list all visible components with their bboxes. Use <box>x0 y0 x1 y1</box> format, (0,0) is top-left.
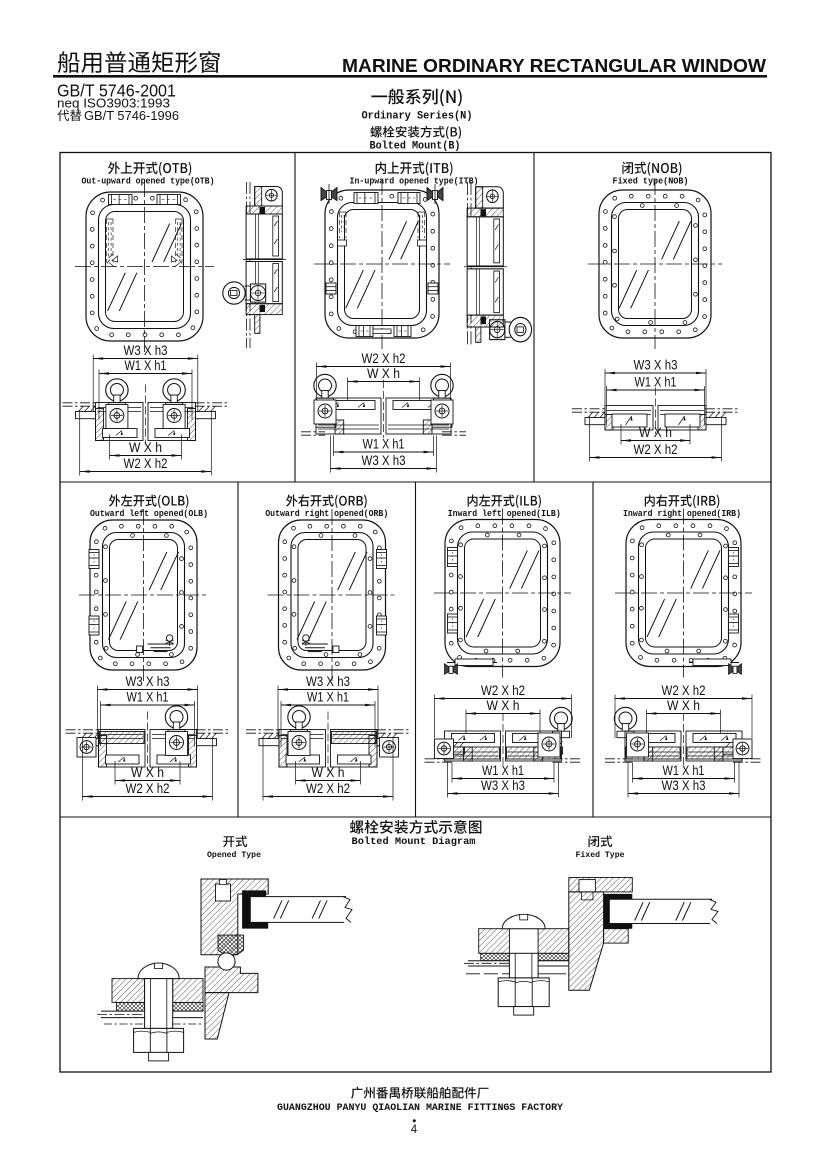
svg-text:W1 X h1: W1 X h1 <box>307 690 349 705</box>
svg-text:W X h: W X h <box>131 765 164 780</box>
svg-text:W3 X h3: W3 X h3 <box>634 358 678 373</box>
svg-text:W X h: W X h <box>312 765 345 780</box>
svg-text:Opened Type: Opened Type <box>207 850 261 860</box>
svg-text:W1 X h1: W1 X h1 <box>635 375 677 390</box>
svg-text:MARINE ORDINARY RECTANGULAR WI: MARINE ORDINARY RECTANGULAR WINDOW <box>342 55 767 76</box>
svg-text:W2 X h2: W2 X h2 <box>306 781 350 796</box>
svg-text:Inward right opened(IRB): Inward right opened(IRB) <box>623 509 741 519</box>
svg-text:W3 X h3: W3 X h3 <box>306 674 350 689</box>
svg-text:W3 X h3: W3 X h3 <box>362 453 406 468</box>
svg-text:W1 X h1: W1 X h1 <box>482 763 524 778</box>
svg-text:GB/T 5746-1996: GB/T 5746-1996 <box>84 108 179 123</box>
svg-text:Inward left opened(ILB): Inward left opened(ILB) <box>448 509 561 519</box>
svg-text:W3 X h3: W3 X h3 <box>124 343 168 358</box>
svg-text:W X h: W X h <box>129 440 162 455</box>
svg-text:GUANGZHOU PANYU QIAOLIAN MARIN: GUANGZHOU PANYU QIAOLIAN MARINE FITTINGS… <box>277 1102 564 1114</box>
svg-text:W1 X h1: W1 X h1 <box>663 763 705 778</box>
svg-text:W3 X h3: W3 X h3 <box>126 674 170 689</box>
svg-text:Bolted Mount(B): Bolted Mount(B) <box>370 141 461 153</box>
svg-text:W3 X h3: W3 X h3 <box>662 778 706 793</box>
svg-text:W2 X h2: W2 X h2 <box>662 683 706 698</box>
svg-text:W2 X h2: W2 X h2 <box>634 442 678 457</box>
svg-text:W3 X h3: W3 X h3 <box>481 778 525 793</box>
svg-text:Bolted Mount Diagram: Bolted Mount Diagram <box>352 836 476 848</box>
svg-text:4: 4 <box>411 1124 418 1136</box>
svg-text:Fixed type(NOB): Fixed type(NOB) <box>613 176 689 187</box>
svg-text:Outward right opened(ORB): Outward right opened(ORB) <box>265 509 388 519</box>
svg-text:W X h: W X h <box>487 698 520 713</box>
svg-text:W2 X h2: W2 X h2 <box>126 781 170 796</box>
svg-text:Outward left opened(OLB): Outward left opened(OLB) <box>90 509 208 519</box>
svg-text:W X h: W X h <box>367 366 400 381</box>
svg-text:W2 X h2: W2 X h2 <box>481 683 525 698</box>
svg-text:W X h: W X h <box>639 425 672 440</box>
svg-text:Fixed Type: Fixed Type <box>576 850 625 860</box>
svg-text:W2 X h2: W2 X h2 <box>124 456 168 471</box>
svg-text:Ordinary Series(N): Ordinary Series(N) <box>362 111 473 123</box>
svg-text:W1 X h1: W1 X h1 <box>125 358 167 373</box>
svg-text:W1 X h1: W1 X h1 <box>127 690 169 705</box>
svg-text:Out-upward opened type(OTB): Out-upward opened type(OTB) <box>82 176 215 187</box>
svg-text:W1 X h1: W1 X h1 <box>363 437 405 452</box>
svg-text:W2 X h2: W2 X h2 <box>362 351 406 366</box>
svg-text:In-upward opened type(ITB): In-upward opened type(ITB) <box>350 176 479 187</box>
svg-text:W X h: W X h <box>667 698 700 713</box>
